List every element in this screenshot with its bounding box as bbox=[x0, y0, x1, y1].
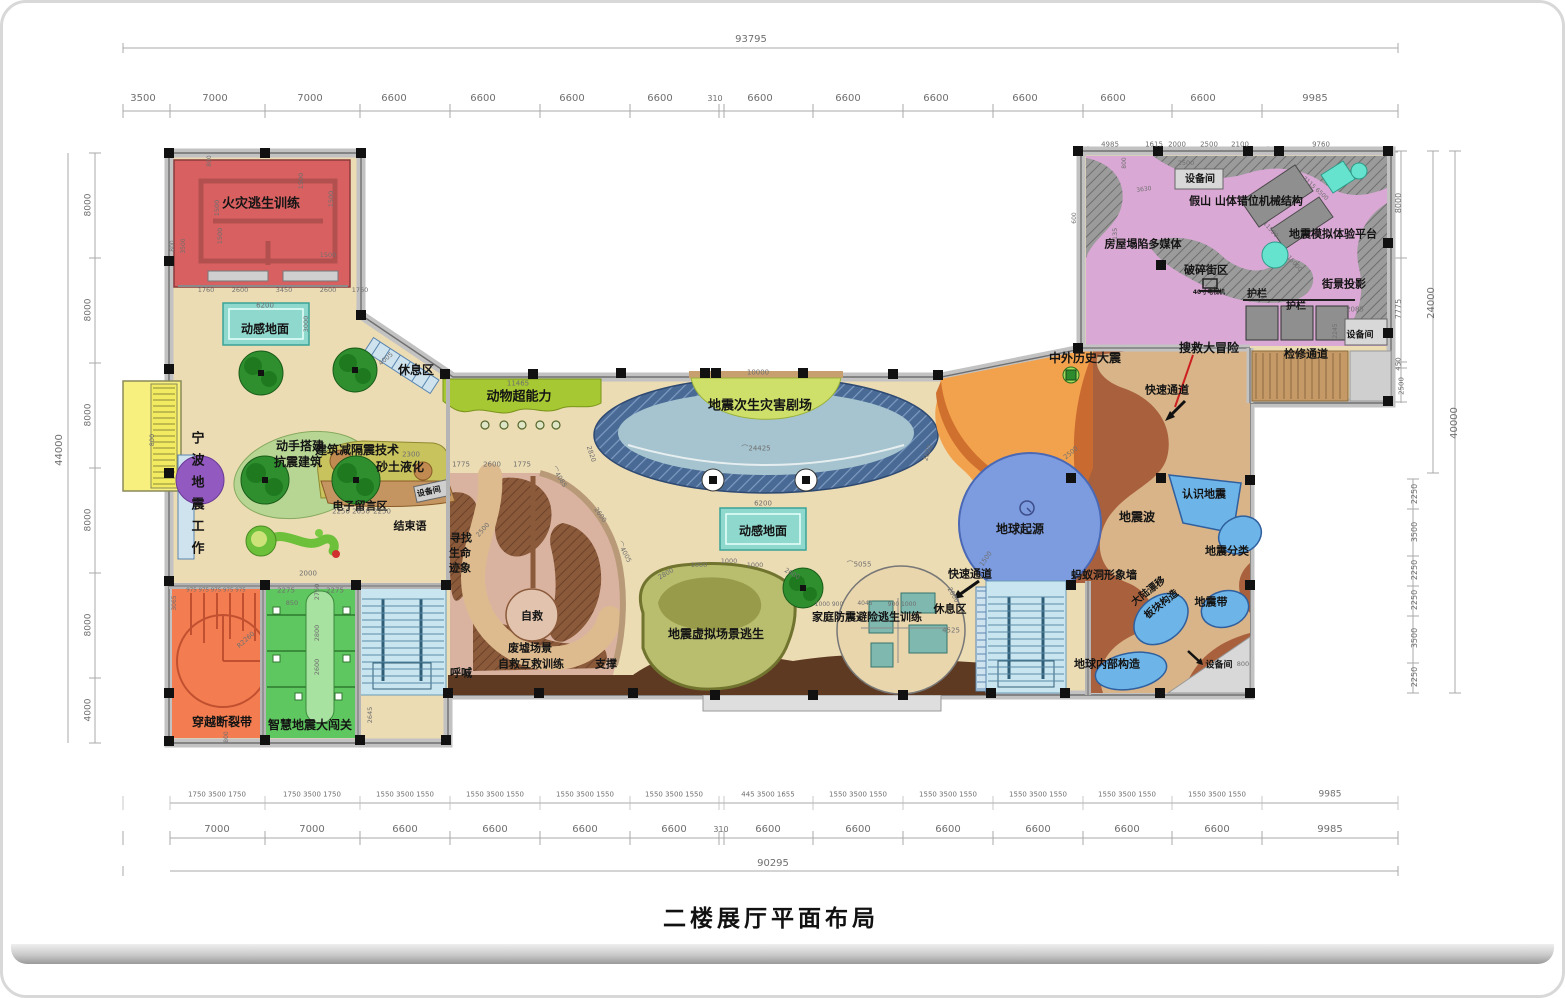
equipment-box-top bbox=[1175, 169, 1223, 189]
floor-plan-page: 火灾逃生训练动感地面休息区动物超能力宁波地震工作动手搭建抗震建筑建筑减隔震技术砂… bbox=[0, 0, 1565, 998]
zone-smart-challenge-room bbox=[265, 588, 356, 738]
page-title: 二楼展厅平面布局 bbox=[663, 899, 879, 933]
floor-plan-drawing bbox=[3, 3, 1565, 998]
cyan-pool bbox=[1262, 242, 1288, 268]
zone-fire-escape-room bbox=[174, 160, 350, 287]
zone-family-training bbox=[837, 566, 965, 694]
zone-brown-geology bbox=[1081, 349, 1268, 695]
stairwell-west bbox=[360, 585, 446, 695]
tree-center bbox=[783, 568, 823, 608]
page-bottom-edge bbox=[11, 944, 1554, 964]
east-steps bbox=[1252, 351, 1348, 401]
stairwell-east bbox=[976, 581, 1066, 693]
zone-cross-fault-room bbox=[172, 588, 269, 738]
zone-earth-origin-circle bbox=[959, 453, 1101, 595]
ningbo-station-circle bbox=[176, 456, 224, 504]
self-rescue-circle bbox=[506, 589, 558, 641]
equipment-box-right bbox=[1345, 319, 1387, 345]
